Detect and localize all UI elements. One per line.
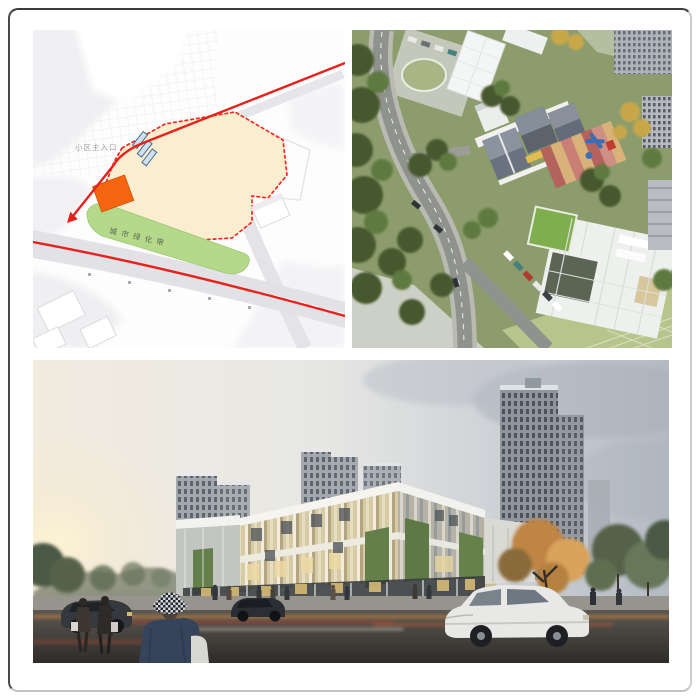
main-entrance-label: 小区主入口 (75, 142, 118, 152)
street-rendering (33, 360, 669, 663)
site-plan-drawing: 城市绿化带 小区主入口 (33, 30, 345, 348)
site-plan-panel: 城市绿化带 小区主入口 (33, 30, 345, 348)
notch-building (251, 194, 290, 228)
collage-canvas: 城市绿化带 小区主入口 (0, 0, 700, 700)
street-view-panel (33, 360, 669, 663)
aerial-view-panel (352, 30, 672, 348)
aerial-rendering (352, 30, 672, 348)
